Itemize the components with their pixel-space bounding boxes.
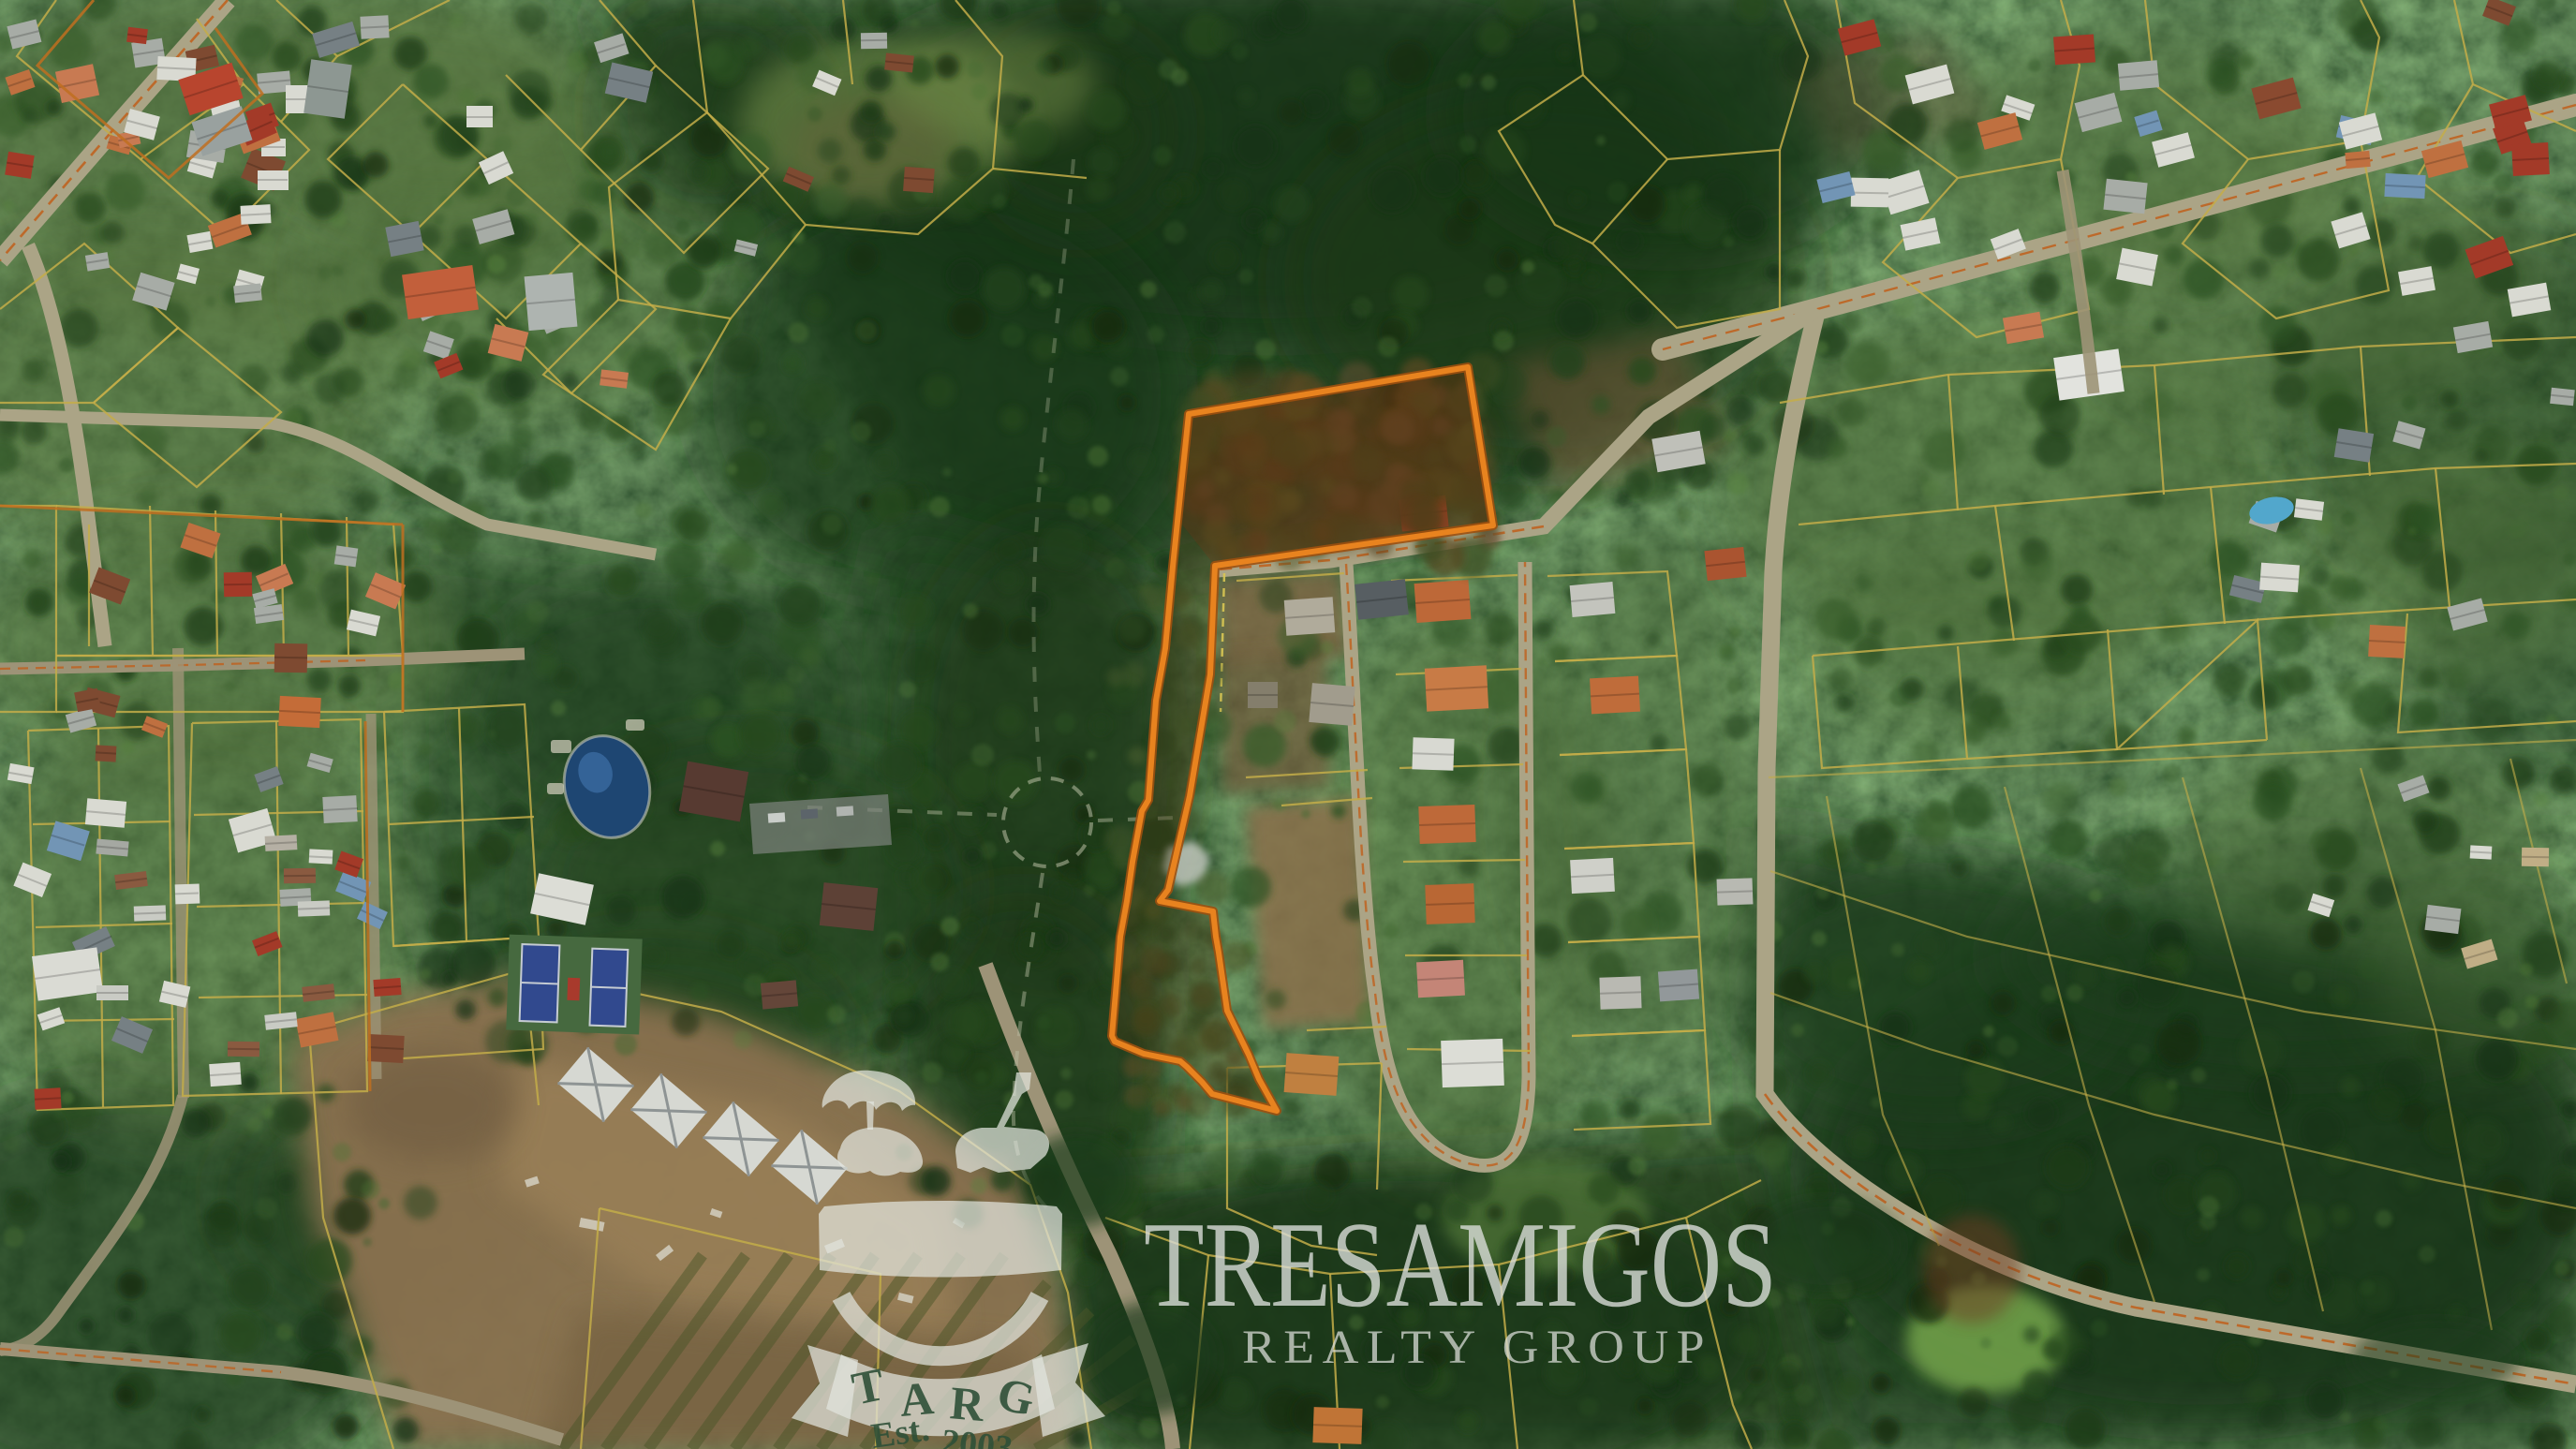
svg-text:Est.: Est. [868, 1410, 932, 1449]
svg-text:REALTY GROUP: REALTY GROUP [1242, 1322, 1712, 1374]
svg-text:TRESAMIGOS: TRESAMIGOS [1144, 1197, 1777, 1333]
